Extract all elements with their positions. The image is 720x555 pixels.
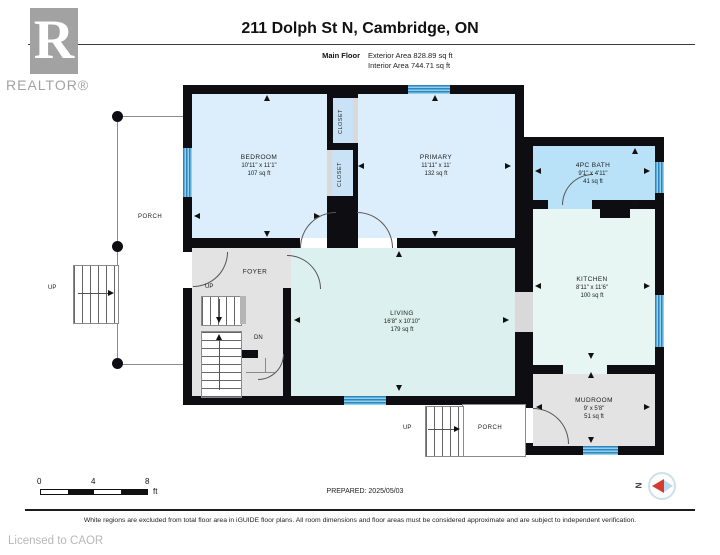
bedroom-window (183, 148, 192, 197)
closet-bottom-label: CLOSET (337, 155, 343, 193)
stairs-arrow-line (219, 299, 220, 317)
porch-left-label: PORCH (138, 214, 162, 220)
living-label: LIVING 16'8" x 10'10" 179 sq ft (384, 309, 420, 335)
dim-arrow (396, 385, 402, 391)
closet-top-door (353, 98, 358, 143)
stairs-arrow-icon (454, 426, 460, 432)
dim-arrow (314, 213, 320, 219)
wall (397, 238, 515, 248)
scale-unit: ft (153, 487, 157, 496)
wall (524, 365, 563, 374)
dim-arrow (432, 231, 438, 237)
dim-arrow (644, 168, 650, 174)
wall (607, 365, 655, 374)
kitchen-window (655, 295, 664, 347)
living-kitchen-opening (515, 292, 533, 332)
dim-arrow (432, 95, 438, 101)
dim-arrow (264, 95, 270, 101)
prepared-date: PREPARED: 2025/05/03 (280, 488, 450, 495)
up-label-left-stairs: UP (48, 285, 56, 291)
mudroom-window (583, 446, 618, 455)
dim-arrow (644, 404, 650, 410)
dn-label-basement-stairs: DN (254, 335, 263, 341)
bedroom-label: BEDROOM 10'11" x 11'1" 107 sq ft (241, 153, 277, 179)
dim-arrow (503, 317, 509, 323)
dim-arrow (505, 163, 511, 169)
closet-bottom-door (327, 150, 332, 196)
living-window (344, 396, 386, 405)
bath-window (655, 162, 664, 193)
porch-bottom-label: PORCH (478, 425, 502, 431)
dim-arrow (588, 372, 594, 378)
dim-arrow (644, 283, 650, 289)
wall (524, 200, 548, 209)
up-label-foyer-stairs: UP (205, 284, 213, 290)
porch-bottom-stairs (425, 406, 464, 457)
dim-arrow (194, 213, 200, 219)
wall (183, 288, 192, 405)
wall (592, 200, 655, 209)
stairs-arrow-line (428, 429, 454, 430)
compass-needle-icon (652, 479, 664, 493)
bath-label: 4PC BATH 9'1" x 4'11" 41 sq ft (576, 161, 611, 187)
stairs-landing (240, 296, 246, 324)
stairs-arrow-icon (216, 317, 222, 323)
dim-arrow (294, 317, 300, 323)
dim-arrow (535, 168, 541, 174)
wall (600, 209, 630, 218)
porch-post (112, 241, 123, 252)
stairs-arrow-icon (108, 290, 114, 296)
disclaimer-text: White regions are excluded from total fl… (40, 517, 680, 524)
primary-window (408, 85, 450, 94)
stair-guard-line (265, 358, 266, 373)
compass-tail-icon (664, 480, 673, 492)
dim-arrow (536, 404, 542, 410)
mudroom-label: MUDROOM 9' x 5'8" 51 sq ft (575, 396, 613, 422)
wall (283, 288, 291, 396)
kitchen-label: KITCHEN 8'11" x 11'6" 100 sq ft (576, 275, 608, 301)
dim-arrow (632, 201, 638, 207)
dim-arrow (264, 231, 270, 237)
footer-rule (25, 509, 695, 511)
porch-post (112, 111, 123, 122)
wall (524, 137, 664, 146)
dim-arrow (588, 353, 594, 359)
primary-label: PRIMARY 11'11" x 11' 132 sq ft (420, 153, 452, 179)
wall (192, 238, 300, 248)
stairs-arrow-line (78, 293, 108, 294)
stair-guard-line (246, 372, 275, 373)
dim-arrow (358, 163, 364, 169)
scale-tick-8: 8 (145, 477, 149, 486)
north-label: N (634, 483, 643, 489)
closet-top-label: CLOSET (338, 102, 344, 140)
scale-bar (40, 489, 148, 495)
foyer-label: FOYER (243, 267, 267, 276)
stairs-down-basement (201, 331, 242, 398)
dim-arrow (588, 437, 594, 443)
porch-left-area (117, 116, 184, 365)
floor-plan: PORCH UP (0, 0, 720, 555)
scale-tick-4: 4 (91, 477, 95, 486)
stairs-arrow-icon (216, 334, 222, 340)
licensed-to-text: Licensed to CAOR (8, 535, 103, 547)
dim-arrow (632, 148, 638, 154)
scale-tick-0: 0 (37, 477, 41, 486)
wall (183, 85, 524, 94)
up-label-bottom-stairs: UP (403, 425, 411, 431)
dim-arrow (535, 283, 541, 289)
stairs-arrow-line (219, 340, 220, 390)
porch-post (112, 358, 123, 369)
wall (515, 85, 524, 405)
dim-arrow (396, 251, 402, 257)
